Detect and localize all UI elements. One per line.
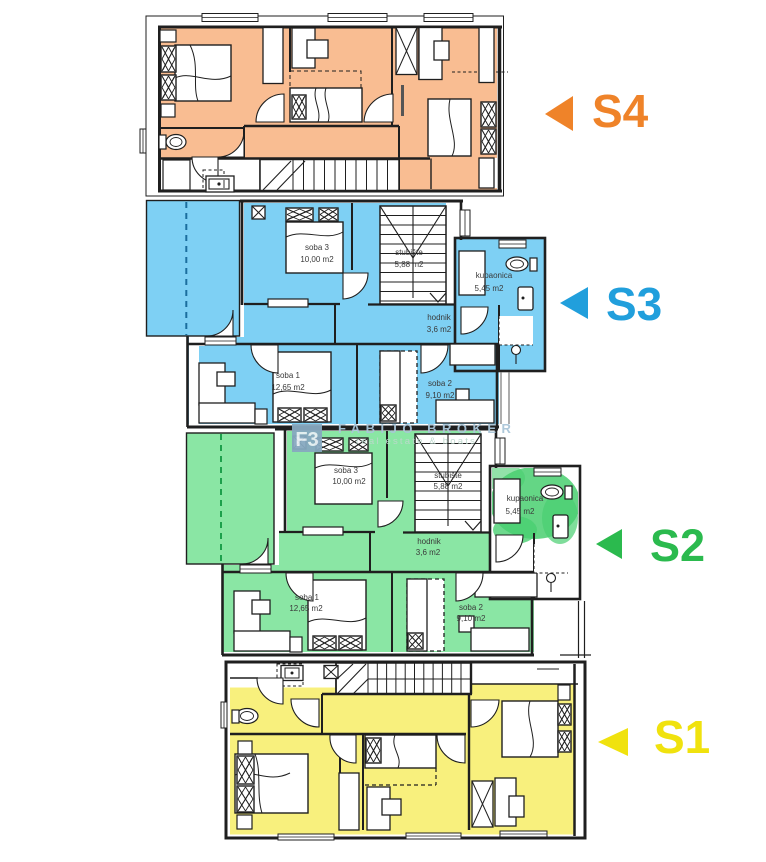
svg-text:S1: S1 — [654, 711, 710, 763]
svg-text:S4: S4 — [592, 85, 649, 137]
svg-text:10,00 m2: 10,00 m2 — [332, 477, 366, 486]
svg-text:5,88 m2: 5,88 m2 — [395, 260, 424, 269]
svg-text:3,6 m2: 3,6 m2 — [416, 548, 441, 557]
svg-text:soba 1: soba 1 — [276, 371, 301, 380]
svg-text:12,65 m2: 12,65 m2 — [271, 383, 305, 392]
svg-text:soba 2: soba 2 — [428, 379, 453, 388]
svg-text:stubište: stubište — [395, 248, 423, 257]
svg-text:5,45 m2: 5,45 m2 — [506, 507, 535, 516]
svg-text:12,65 m2: 12,65 m2 — [289, 604, 323, 613]
svg-text:3,6 m2: 3,6 m2 — [427, 325, 452, 334]
svg-text:9,10 m2: 9,10 m2 — [457, 614, 486, 623]
svg-text:kupaonica: kupaonica — [476, 271, 513, 280]
svg-text:5,45 m2: 5,45 m2 — [475, 284, 504, 293]
svg-text:S2: S2 — [650, 520, 705, 571]
svg-text:soba 1: soba 1 — [295, 593, 320, 602]
svg-text:soba 2: soba 2 — [459, 603, 484, 612]
svg-text:hodnik: hodnik — [417, 537, 442, 546]
svg-text:S3: S3 — [606, 278, 662, 330]
svg-text:soba 3: soba 3 — [334, 466, 359, 475]
svg-text:real estate & boats: real estate & boats — [356, 436, 477, 447]
svg-text:5,88 m2: 5,88 m2 — [434, 482, 463, 491]
svg-text:F3: F3 — [295, 429, 318, 451]
svg-text:FABIJO BROKER: FABIJO BROKER — [338, 421, 516, 436]
svg-text:10,00 m2: 10,00 m2 — [300, 255, 334, 264]
svg-text:kupaonica: kupaonica — [507, 494, 544, 503]
svg-text:stubište: stubište — [434, 471, 462, 480]
svg-text:soba 3: soba 3 — [305, 243, 330, 252]
svg-text:hodnik: hodnik — [427, 313, 452, 322]
svg-text:9,10 m2: 9,10 m2 — [426, 391, 455, 400]
